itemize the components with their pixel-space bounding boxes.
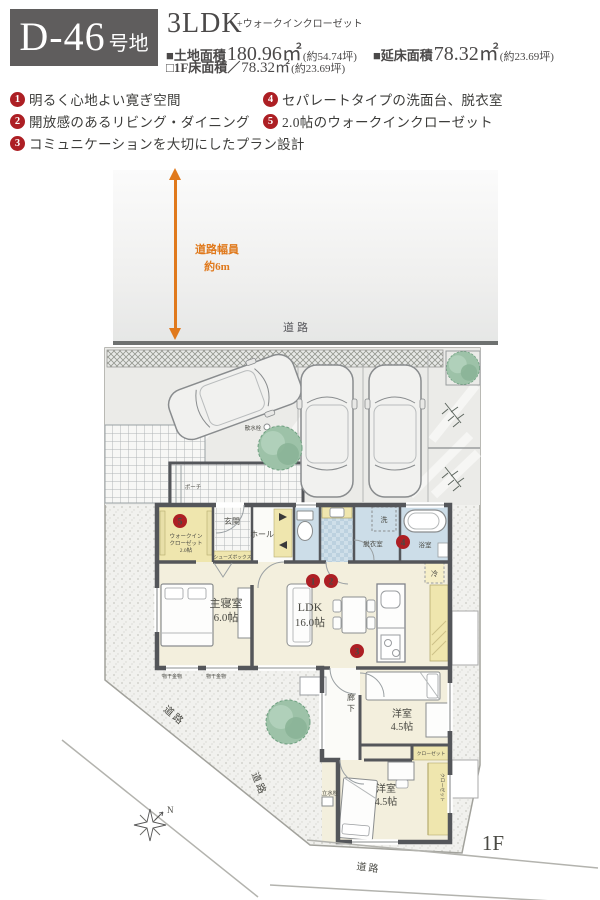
feature-2-text: 開放感のあるリビング・ダイニング <box>29 115 250 130</box>
road-width-value: 約6m <box>185 259 249 276</box>
dining-table-icon <box>342 597 366 633</box>
sofa-icon <box>287 584 312 646</box>
marker-4: 4 <box>401 539 406 549</box>
master-bedroom-label: 主寝室 <box>210 596 243 610</box>
lot-suffix: 号地 <box>109 33 149 55</box>
feature-item-5: 52.0帖のウォークインクローゼット <box>263 111 493 131</box>
bath-sink-icon <box>438 543 448 557</box>
lot-number: D-46 <box>19 14 105 59</box>
car-icon <box>365 365 425 497</box>
f1-area-label: □1F床面積／ <box>166 60 240 75</box>
floor-plan-svg: ポーチ 散水栓 <box>0 345 600 900</box>
west-room-2-label: 洋室 <box>376 782 396 795</box>
road-label-bottom: 道路 <box>356 860 381 876</box>
bed-icon <box>338 778 377 841</box>
floor-plan-sheet: D-46号地 3LDK +ウォークインクローゼット ■土地面積180.96㎡(約… <box>0 0 600 900</box>
shoes-box-label: シューズボックス <box>214 554 252 561</box>
road-width-arrow-icon <box>174 178 177 330</box>
sprinkler-tap-label: 散水栓 <box>245 424 262 432</box>
car-icon <box>297 365 357 497</box>
desk-icon <box>426 703 448 737</box>
corridor-label-1: 廊 <box>347 692 355 702</box>
feature-item-4: 4セパレートタイプの洗面台、脱衣室 <box>263 89 503 109</box>
outdoor-tap-label: 立水栓 <box>322 789 339 797</box>
outdoor-tap-icon <box>322 797 333 806</box>
pantry-strip <box>430 585 448 661</box>
feature-1-text: 明るく心地よい寛ぎ空間 <box>29 93 181 108</box>
plan-type: 3LDK <box>167 8 243 40</box>
total-floor-area-label: ■延床面積 <box>373 48 433 63</box>
laundry-hook-label: 物干金物 <box>162 673 182 680</box>
west-room-2-size: 4.5帖 <box>375 795 398 808</box>
pillow-icon <box>165 588 183 599</box>
hall-label: ホール <box>250 530 274 539</box>
closet-1-label: クローゼット <box>417 750 446 757</box>
feature-3-badge: 3 <box>10 136 25 151</box>
sink-icon <box>330 508 344 517</box>
wic-label-3: 2.0帖 <box>180 546 193 554</box>
wic-label-1: ウォークイン <box>169 532 203 540</box>
feature-item-2: 2開放感のあるリビング・ダイニング <box>10 111 250 131</box>
ldk-label: LDK <box>298 600 323 614</box>
master-bedroom-size: 6.0帖 <box>214 611 239 624</box>
toilet-icon <box>297 511 313 520</box>
fridge-label: 冷 <box>431 569 438 578</box>
marker-3: 3 <box>355 648 360 658</box>
f1-area-tsubo: (約23.69坪) <box>291 63 345 75</box>
feature-4-badge: 4 <box>263 92 278 107</box>
total-floor-area-tsubo: (約23.69坪) <box>500 51 554 63</box>
stove-icon <box>381 635 400 659</box>
road-width-label: 道路幅員 約6m <box>185 242 249 275</box>
marker-2: 2 <box>329 578 334 588</box>
feature-4-text: セパレートタイプの洗面台、脱衣室 <box>282 93 503 108</box>
floor-label: 1F <box>482 831 504 855</box>
west-room-1-size: 4.5帖 <box>391 720 414 733</box>
feature-1-badge: 1 <box>10 92 25 107</box>
f1-area-value: 78.32㎡ <box>241 60 290 76</box>
datsui-label: 脱衣室 <box>363 539 383 548</box>
kitchen-sink-icon <box>381 591 400 608</box>
tree-icon <box>447 352 480 385</box>
compass-icon: N <box>134 805 174 841</box>
genkan-label: 玄関 <box>224 516 240 526</box>
closet-2-label: クローゼット <box>439 773 446 802</box>
desk-icon <box>388 762 414 780</box>
compass-n-label: N <box>167 805 174 815</box>
service-area <box>452 611 478 665</box>
chair-icon <box>396 780 408 788</box>
road-width-text: 道路幅員 <box>185 242 249 259</box>
laundry-hook-label: 物干金物 <box>206 673 226 680</box>
tree-icon <box>258 426 302 470</box>
feature-5-text: 2.0帖のウォークインクローゼット <box>282 115 493 130</box>
tree-icon <box>266 700 310 744</box>
plan-note: +ウォークインクローゼット <box>237 15 363 30</box>
lot-number-badge: D-46号地 <box>10 9 158 66</box>
cabinet-icon <box>238 588 251 638</box>
bath-label: 浴室 <box>419 540 433 549</box>
feature-5-badge: 5 <box>263 114 278 129</box>
west-room-1-label: 洋室 <box>392 707 412 720</box>
area-line-2: □1F床面積／78.32㎡(約23.69坪) <box>166 56 345 77</box>
washer-label: 洗 <box>381 515 388 524</box>
front-road-area: 道路幅員 約6m 道路 <box>113 170 498 345</box>
road-label-top: 道路 <box>283 319 311 335</box>
marker-1: 1 <box>311 578 316 588</box>
wic-label-2: クローゼット <box>169 539 202 547</box>
service-area <box>452 760 478 798</box>
total-floor-area-value: 78.32㎡ <box>434 43 499 65</box>
feature-2-badge: 2 <box>10 114 25 129</box>
toilet-icon <box>298 522 313 541</box>
feature-3-text: コミュニケーションを大切にしたプラン設計 <box>29 137 305 152</box>
marker-5: 5 <box>178 518 183 528</box>
pillow-icon <box>188 588 206 599</box>
porch-label: ポーチ <box>185 484 202 491</box>
feature-item-3: 3コミュニケーションを大切にしたプラン設計 <box>10 133 305 153</box>
feature-item-1: 1明るく心地よい寛ぎ空間 <box>10 89 181 109</box>
corridor-label-2: 下 <box>347 704 355 713</box>
ldk-size: 16.0帖 <box>295 616 325 629</box>
